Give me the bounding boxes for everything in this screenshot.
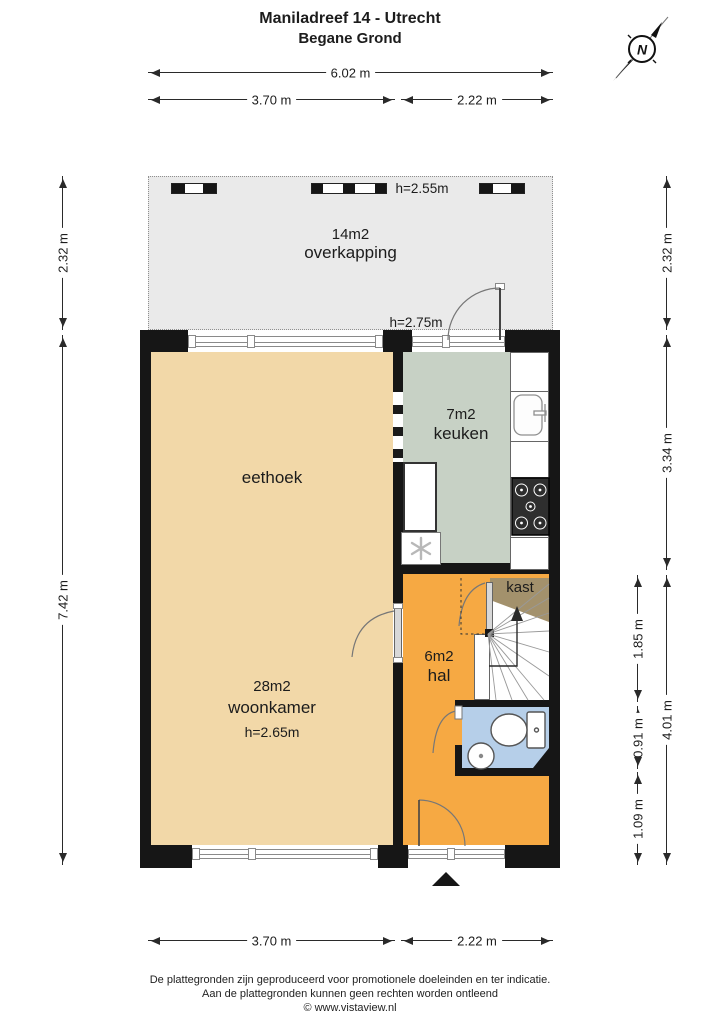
eethoek-name: eethoek (151, 468, 393, 488)
toilet-icon (491, 712, 545, 748)
woonkamer-ceiling-height: h=2.65m (151, 724, 393, 740)
keuken-name: keuken (403, 424, 519, 444)
ventilation-icon (412, 538, 430, 559)
plan-vector-overlay (0, 0, 724, 1024)
hal-name: hal (403, 666, 475, 686)
stove-icon (512, 478, 549, 535)
keuken-exterior-door (448, 288, 500, 340)
toilet-door-arc (433, 711, 456, 753)
stairs-treads (488, 584, 549, 700)
toilet-door-leaf (455, 706, 462, 719)
entrance-door (419, 800, 465, 846)
footer-copyright: © www.vistaview.nl (0, 1002, 700, 1014)
woonkamer-door-arc (352, 611, 394, 657)
keuken-door-ceiling-height: h=2.75m (376, 315, 456, 331)
hand-basin-icon (468, 743, 494, 769)
floorplan-page: Maniladreef 14 - Utrecht Begane Grond N … (0, 0, 724, 1024)
keuken-area: 7m2 (403, 406, 519, 423)
stairs-door-swing (459, 578, 486, 634)
kast-name: kast (492, 579, 548, 596)
footer-disclaimer-1: De plattegronden zijn geproduceerd voor … (0, 974, 700, 986)
woonkamer-area: 28m2 (151, 678, 393, 695)
woonkamer-name: woonkamer (151, 698, 393, 718)
hal-area: 6m2 (403, 648, 475, 665)
footer-disclaimer-2: Aan de plattegronden kunnen geen rechten… (0, 988, 700, 1000)
